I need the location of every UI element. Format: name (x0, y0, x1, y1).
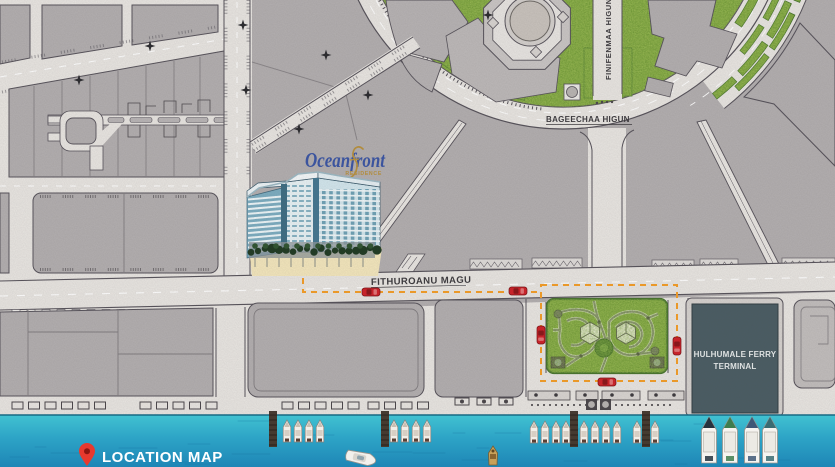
svg-text:LOCATION MAP: LOCATION MAP (102, 449, 223, 466)
